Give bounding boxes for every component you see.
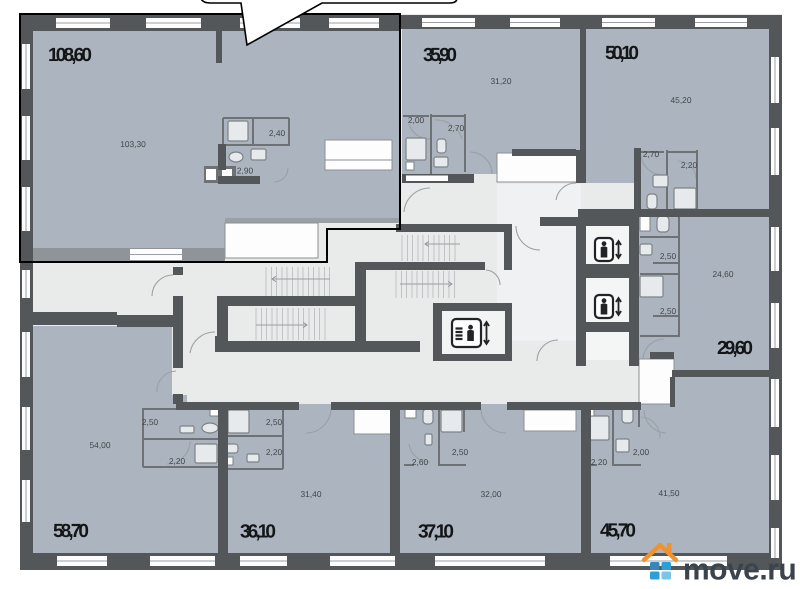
svg-text:31,20: 31,20 bbox=[491, 76, 512, 86]
svg-text:2,50: 2,50 bbox=[452, 447, 469, 457]
svg-text:32,00: 32,00 bbox=[481, 489, 502, 499]
svg-text:37,10: 37,10 bbox=[418, 522, 454, 543]
svg-text:2,70: 2,70 bbox=[643, 149, 660, 159]
svg-text:29,60: 29,60 bbox=[717, 338, 753, 359]
svg-text:54,00: 54,00 bbox=[90, 440, 111, 450]
svg-text:2,20: 2,20 bbox=[169, 456, 186, 466]
svg-text:103,30: 103,30 bbox=[120, 139, 146, 149]
svg-text:35,90: 35,90 bbox=[423, 45, 457, 66]
svg-text:50,10: 50,10 bbox=[605, 43, 639, 64]
svg-text:2,50: 2,50 bbox=[660, 306, 677, 316]
svg-text:108,60: 108,60 bbox=[48, 45, 92, 66]
svg-text:2,40: 2,40 bbox=[269, 128, 286, 138]
svg-text:45,20: 45,20 bbox=[671, 95, 692, 105]
svg-text:2,20: 2,20 bbox=[681, 160, 698, 170]
svg-text:31,40: 31,40 bbox=[301, 489, 322, 499]
svg-text:2,20: 2,20 bbox=[266, 447, 283, 457]
svg-text:58,70: 58,70 bbox=[53, 521, 89, 542]
svg-text:2,50: 2,50 bbox=[660, 251, 677, 261]
svg-text:2,50: 2,50 bbox=[142, 417, 159, 427]
svg-text:move.ru: move.ru bbox=[683, 554, 796, 587]
svg-text:41,50: 41,50 bbox=[659, 488, 680, 498]
svg-text:45,70: 45,70 bbox=[600, 521, 636, 542]
svg-text:36,10: 36,10 bbox=[240, 522, 276, 543]
svg-text:2,70: 2,70 bbox=[448, 123, 465, 133]
svg-text:2,00: 2,00 bbox=[633, 447, 650, 457]
svg-text:2,90: 2,90 bbox=[237, 166, 254, 176]
svg-text:24,60: 24,60 bbox=[713, 269, 734, 279]
svg-text:2,50: 2,50 bbox=[266, 417, 283, 427]
svg-text:2,60: 2,60 bbox=[412, 457, 429, 467]
svg-text:2,00: 2,00 bbox=[408, 115, 425, 125]
svg-text:2,20: 2,20 bbox=[591, 457, 608, 467]
